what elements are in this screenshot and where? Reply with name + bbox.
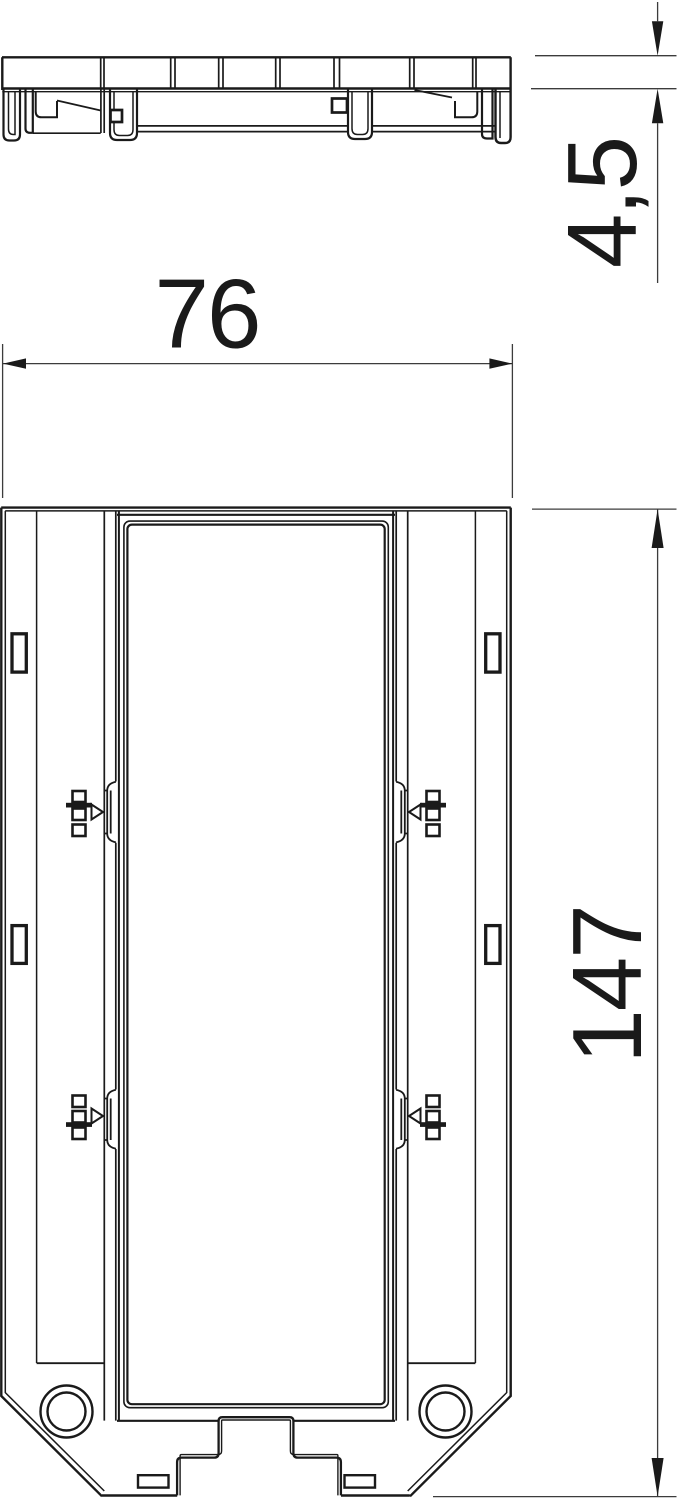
side-view-rails <box>33 89 495 134</box>
dim-height-arrow-top <box>652 509 664 548</box>
frame-wall-outer-lines <box>116 511 396 1421</box>
slot-upper-left <box>12 634 26 672</box>
clip-square <box>427 1128 440 1140</box>
front-view <box>1 508 511 1497</box>
frame-top-bottom-lines <box>117 515 395 1421</box>
fixing-hole-left-inner <box>48 1393 86 1431</box>
clip-square <box>73 791 86 802</box>
dim-thickness-arrow-top <box>652 21 663 56</box>
front-view-panel-edges <box>104 511 407 1421</box>
bottom-tab-outline <box>177 1417 341 1495</box>
dim-width-arrow-left <box>3 358 26 368</box>
side-view-left-lug <box>111 110 123 122</box>
clip-arrow-right-icon <box>92 1109 104 1124</box>
dim-thickness-label: 4,5 <box>547 138 657 268</box>
clip-marker-upper-right <box>409 791 446 836</box>
front-view-inner-contour <box>5 511 507 1491</box>
clip-marker-lower-left <box>66 1096 103 1140</box>
clip-square <box>427 1096 440 1108</box>
dim-thickness-extension-lines <box>531 56 677 89</box>
clip-square <box>427 825 440 837</box>
front-view-outer-contour <box>1 508 511 1497</box>
dim-width-arrow-right <box>489 358 512 368</box>
technical-drawing: 76 4,5 147 <box>0 0 677 1500</box>
clip-square <box>427 791 440 802</box>
clip-square <box>73 825 86 837</box>
clip-marker-upper-left <box>66 791 103 836</box>
slot-lower-left <box>12 926 26 964</box>
bottom-lug-left <box>138 1475 169 1487</box>
dim-width-label: 76 <box>154 259 259 369</box>
clip-bar <box>66 803 92 808</box>
clip-arrow-right-icon <box>92 805 104 820</box>
dimension-thickness: 4,5 <box>531 2 677 283</box>
side-view-hooks <box>36 92 478 118</box>
clip-square <box>73 1096 86 1108</box>
clip-marker-lower-right <box>409 1096 446 1140</box>
slot-lower-right <box>486 926 500 964</box>
side-view <box>2 57 511 143</box>
fixing-hole-right-inner <box>427 1393 465 1431</box>
side-view-division-lines <box>101 58 476 89</box>
technical-drawing-page: 76 4,5 147 <box>0 0 677 1500</box>
clip-square <box>427 809 440 821</box>
clip-square <box>427 1111 440 1123</box>
dimension-width: 76 <box>3 259 513 499</box>
clip-arrow-left-icon <box>409 805 421 820</box>
opening-border-inner <box>127 525 384 1405</box>
clip-bar <box>420 1122 446 1127</box>
clip-arrow-left-icon <box>409 1109 421 1124</box>
clip-square <box>73 1111 86 1123</box>
side-view-right-lug <box>332 99 347 113</box>
clip-square <box>73 1128 86 1140</box>
dim-thickness-arrow-bottom <box>652 89 663 124</box>
clip-bar <box>66 1122 92 1127</box>
clip-bar <box>420 803 446 808</box>
front-view-panel-division-lines <box>37 511 476 1363</box>
clip-square <box>73 809 86 821</box>
opening-border-outer <box>124 521 388 1408</box>
slot-upper-right <box>486 634 500 672</box>
dim-height-arrow-bottom <box>652 1458 664 1497</box>
frame-wall-inner-lines <box>119 511 393 1421</box>
side-view-chamfer-lines <box>57 90 452 111</box>
dim-height-label: 147 <box>552 906 662 1064</box>
bottom-lug-right <box>345 1475 376 1487</box>
dimension-height: 147 <box>433 509 677 1497</box>
frame-latches <box>104 782 408 1149</box>
side-view-flange-outline <box>2 57 511 143</box>
